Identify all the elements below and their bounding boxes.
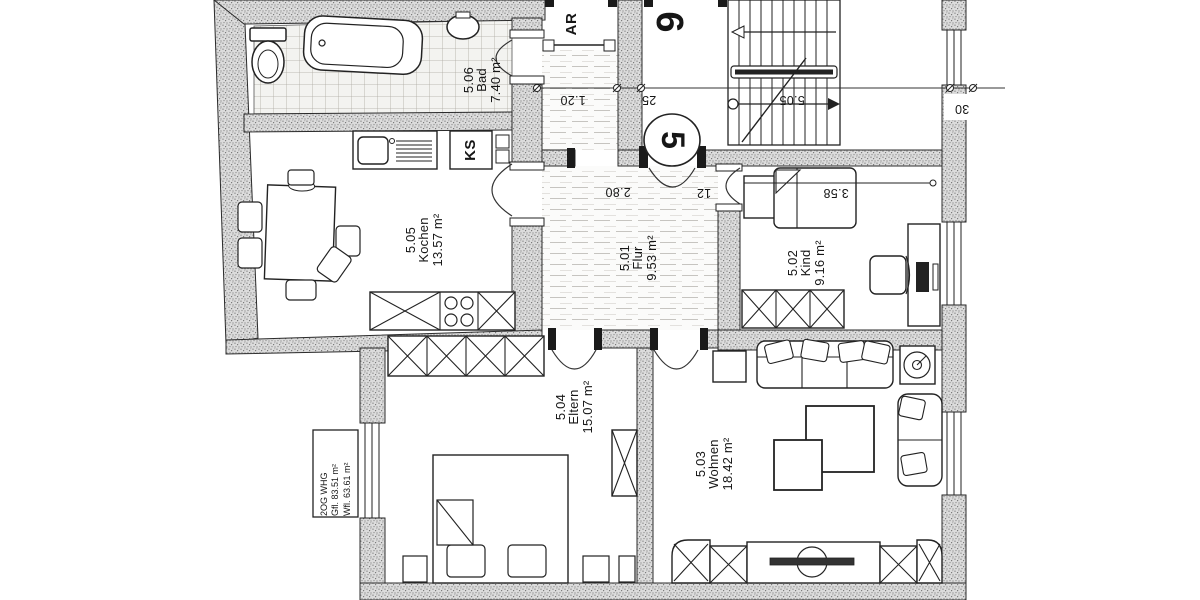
ar-label: AR [564,13,580,36]
ar-door-post [604,40,615,51]
fridge-label: KS [459,120,483,180]
coffee-table-small [774,440,822,490]
kitchen-niche [496,150,509,163]
room-name: Kind [799,250,813,277]
room-area: 7.40 m² [489,57,503,102]
room-number: 5.02 [786,250,800,276]
dim-flur-width: 2.80 [593,184,643,198]
tv-sideboard-row [672,540,942,583]
bath-door-post [510,76,544,84]
kind-desk [908,224,940,326]
room-number: 5.04 [554,394,568,420]
bath-door-post [510,30,544,38]
room-area: 15.07 m² [581,381,595,434]
wohnen-door-post [650,328,658,350]
eltern-window [360,423,385,518]
floorplan-drawing [0,0,1200,600]
info-floor: 2OG WHG [319,472,330,516]
room-label-bad: 5.06 Bad 7.40 m² [461,40,503,120]
plant [900,346,935,384]
kitchen-counter [370,292,515,330]
room-area: 18.42 m² [721,438,735,491]
kind-window [942,222,966,305]
ar-top-post [608,0,617,7]
stairs [728,0,840,145]
room-name: Bad [475,68,489,92]
sofa-top [757,339,893,388]
wohnen-door-post [700,328,708,350]
nightstand [619,556,635,582]
room-area: 9.53 m² [645,235,659,280]
room-number: 5.05 [404,227,418,253]
side-table [713,351,746,382]
dim-value: 1.20 [560,92,586,105]
sofa-right [898,394,942,486]
apartment-door-number: 5 [650,118,694,162]
kitchen-door-post [510,218,544,226]
room-label-kind: 5.02 Kind 9.16 m² [785,223,827,303]
room-name: Wohnen [707,439,721,488]
hall-top-post [718,0,727,7]
kitchen-sink-unit [353,131,437,169]
ks-label: KS [463,139,479,161]
number-5: 5 [655,131,689,149]
room-area: 9.16 m² [813,240,827,285]
kind-chair [870,256,910,294]
kitchen-niche [496,135,509,148]
eltern-cabinet [612,430,637,496]
room-label-kochen: 5.05 Kochen 13.57 m² [403,200,445,280]
room-name: Kochen [417,217,431,262]
floorplan: 5.06 Bad 7.40 m² 5.05 Kochen 13.57 m² 5.… [0,0,1200,600]
nightstand [583,556,609,582]
eltern-wardrobe [388,336,544,376]
wohnen-window [942,412,966,495]
kitchen-door-post [510,162,544,170]
room-label-wohnen: 5.03 Wohnen 18.42 m² [693,424,735,504]
dim-value: 3.58 [823,185,849,198]
room-number: 5.01 [618,245,632,271]
toilet [250,28,286,83]
dim-wall-30: 30 [947,101,977,115]
room-area: 13.57 m² [431,214,445,267]
bathtub [303,15,424,75]
eltern-door-post [594,328,602,350]
room-label-ar: AR [560,0,584,54]
dim-wall-12: 12 [689,185,719,199]
dim-value: 25 [642,92,657,105]
dim-corridor-width: 1.20 [548,92,598,106]
stair-window [942,30,966,85]
nightstand [403,556,427,582]
dim-value: 12 [697,185,712,198]
dim-value: 2.80 [605,184,631,197]
info-wfl: Wfl. 63.61 m² [342,462,353,516]
room-name: Eltern [567,389,581,424]
dim-value: 30 [955,101,970,114]
room-number: 5.03 [694,451,708,477]
dim-value: 5.05 [779,92,805,105]
room-name: Flur [631,246,645,269]
kind-door-post [716,204,742,211]
number-6: 6 [648,11,688,32]
ar-top-post [545,0,554,7]
flur-opening-post [567,148,575,168]
room-label-eltern: 5.04 Eltern 15.07 m² [553,367,595,447]
dim-stair-width: 5.05 [767,92,817,106]
dim-wall-25: 25 [634,92,664,106]
eltern-bed [433,455,568,583]
dim-kind-width: 3.58 [811,185,861,199]
neighbor-door-number: 6 [646,0,690,44]
eltern-door-post [548,328,556,350]
ar-door-post [543,40,554,51]
tv [770,558,854,565]
info-box: 2OG WHG Gfl. 83.51 m² Wfl. 63.61 m² [318,432,354,516]
room-label-flur: 5.01 Flur 9.53 m² [617,218,659,298]
eltern-furniture [388,336,637,583]
info-gfl: Gfl. 83.51 m² [330,464,341,516]
room-number: 5.06 [462,67,476,93]
